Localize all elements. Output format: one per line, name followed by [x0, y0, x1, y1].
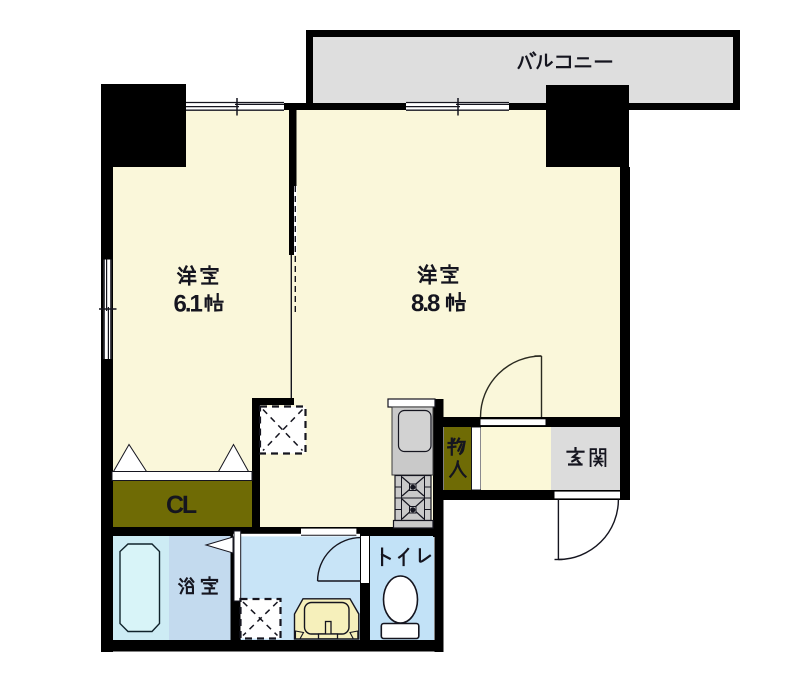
svg-text:8.8: 8.8 [411, 290, 440, 317]
svg-text:CL: CL [166, 491, 197, 519]
svg-text:6.1: 6.1 [174, 291, 203, 318]
